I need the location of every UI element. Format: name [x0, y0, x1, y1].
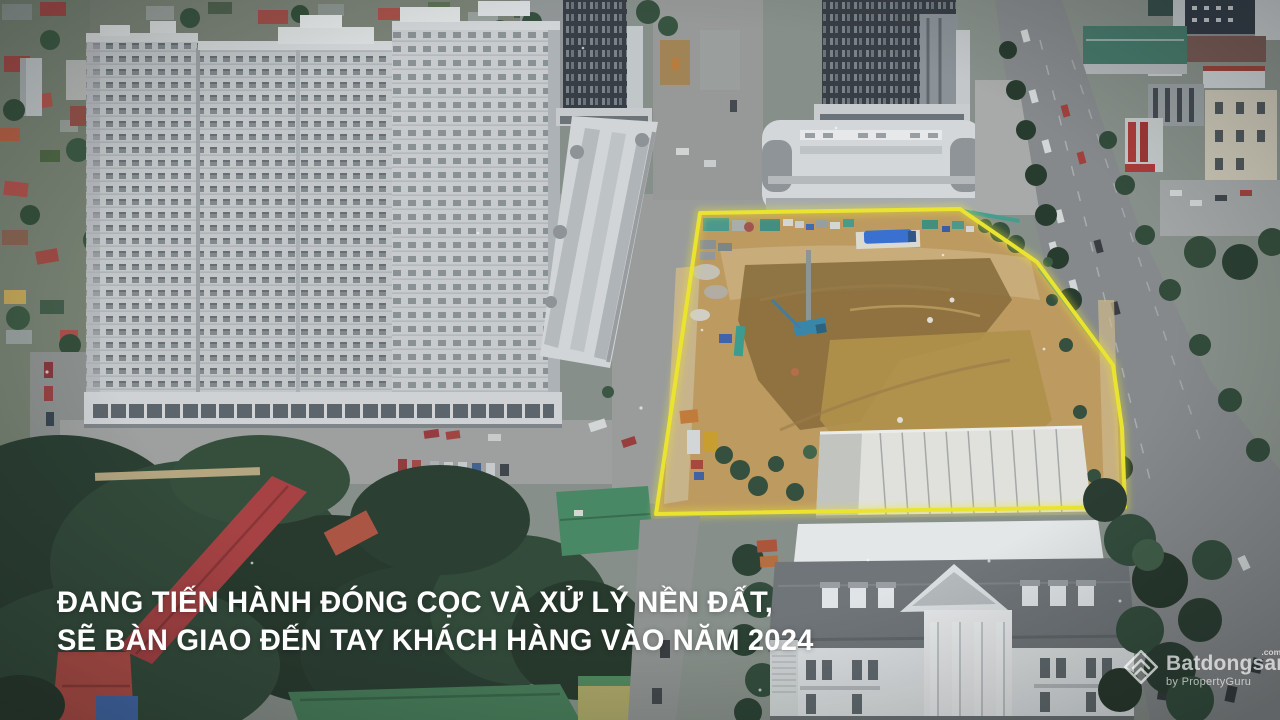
- caption: ĐANG TIẾN HÀNH ĐÓNG CỌC VÀ XỬ LÝ NỀN ĐẤT…: [57, 584, 813, 660]
- watermark-byline: by PropertyGuru: [1166, 677, 1280, 688]
- batdongsan-diamond-chevron-icon: [1122, 648, 1160, 691]
- watermark-domain-suffix: .com.vn: [1261, 648, 1280, 657]
- caption-line-2: SẼ BÀN GIAO ĐẾN TAY KHÁCH HÀNG VÀO NĂM 2…: [57, 622, 813, 660]
- video-frame: ĐANG TIẾN HÀNH ĐÓNG CỌC VÀ XỬ LÝ NỀN ĐẤT…: [0, 0, 1280, 720]
- watermark: Batdongsan .com.vn by PropertyGuru: [1122, 648, 1280, 691]
- caption-line-1: ĐANG TIẾN HÀNH ĐÓNG CỌC VÀ XỬ LÝ NỀN ĐẤT…: [57, 584, 813, 622]
